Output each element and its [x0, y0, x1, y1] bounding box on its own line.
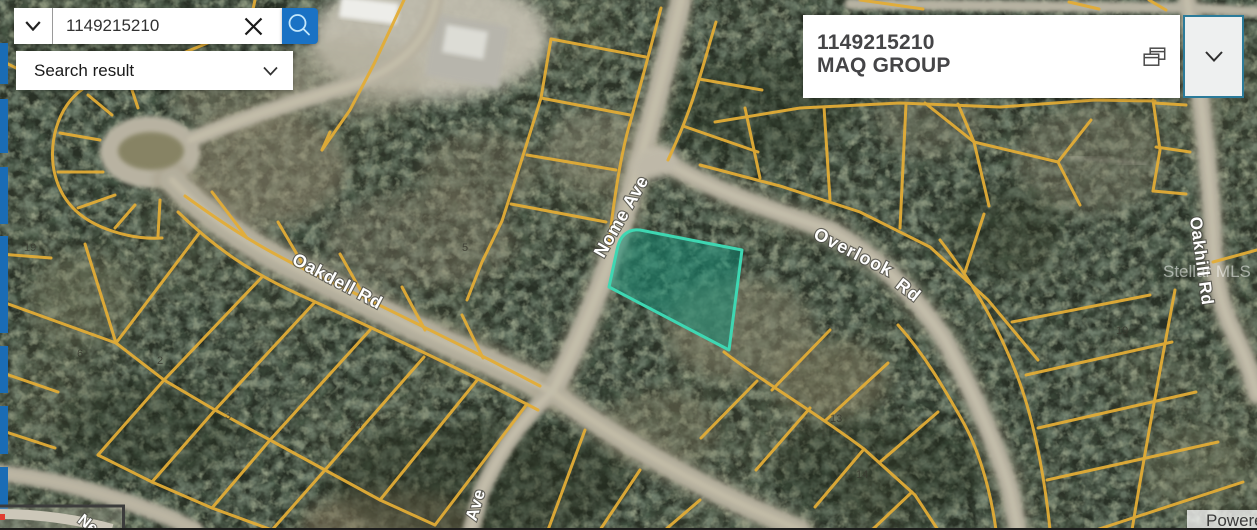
svg-text:13: 13	[830, 413, 842, 425]
svg-text:5: 5	[462, 242, 468, 254]
svg-text:19: 19	[24, 242, 36, 254]
svg-text:Stellar MLS: Stellar MLS	[1163, 262, 1251, 281]
svg-text:24: 24	[350, 419, 362, 431]
svg-text:14: 14	[856, 469, 868, 481]
svg-text:19: 19	[1116, 325, 1128, 337]
svg-text:3: 3	[225, 410, 231, 422]
svg-text:6: 6	[77, 348, 83, 360]
svg-text:Powered by Esri: Powered by Esri	[1206, 511, 1257, 530]
svg-text:2: 2	[157, 355, 163, 367]
